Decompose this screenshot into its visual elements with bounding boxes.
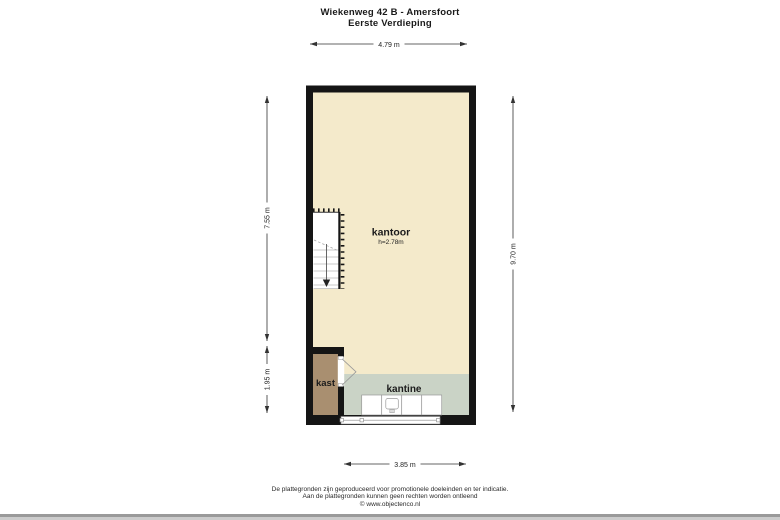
floorplan-drawing: kantoor h=2.78m kast kantine 4.79 m 7.55… bbox=[0, 0, 780, 520]
dimension-right: 9.70 m bbox=[508, 96, 519, 412]
sink-icon bbox=[386, 399, 399, 410]
dim-arrow-icon bbox=[265, 334, 269, 341]
disclaimer-line1: De plattegronden zijn geproduceerd voor … bbox=[0, 486, 780, 493]
kantoor-height-label: h=2.78m bbox=[378, 239, 403, 246]
dim-arrow-icon bbox=[310, 42, 317, 46]
floorplan-page: { "page": { "title_line1": "Wiekenweg 42… bbox=[0, 0, 780, 520]
dim-arrow-icon bbox=[460, 42, 467, 46]
dim-arrow-icon bbox=[344, 462, 351, 466]
kitchen-counter bbox=[362, 395, 442, 415]
disclaimer-line2: Aan de plattegronden kunnen geen rechten… bbox=[0, 493, 780, 500]
dim-arrow-icon bbox=[265, 346, 269, 353]
stairwell bbox=[313, 210, 343, 289]
window-mullion bbox=[340, 418, 344, 422]
dim-right-label: 9.70 m bbox=[511, 243, 518, 265]
window-mullion bbox=[360, 418, 364, 422]
counter-cabinet bbox=[402, 395, 422, 415]
kantine-label: kantine bbox=[386, 384, 421, 395]
door-opening bbox=[338, 357, 344, 386]
window-bottom-border-light bbox=[0, 517, 780, 520]
kast-label: kast bbox=[316, 378, 336, 389]
dim-bottom-label: 3.85 m bbox=[394, 462, 416, 469]
dimension-left-upper: 7.55 m bbox=[262, 96, 273, 341]
dim-arrow-icon bbox=[511, 405, 515, 412]
disclaimer-line3: © www.objectenco.nl bbox=[0, 501, 780, 508]
counter-cabinet bbox=[362, 395, 382, 415]
dim-arrow-icon bbox=[265, 96, 269, 103]
kantoor-label: kantoor bbox=[372, 227, 411, 239]
window-mullion bbox=[437, 418, 441, 422]
dimension-bottom: 3.85 m bbox=[344, 459, 466, 469]
sink-tap-icon bbox=[390, 410, 395, 413]
dim-arrow-icon bbox=[459, 462, 466, 466]
disclaimer: De plattegronden zijn geproduceerd voor … bbox=[0, 486, 780, 508]
dimension-left-lower: 1.95 m bbox=[262, 346, 273, 413]
dim-left-upper-label: 7.55 m bbox=[265, 207, 272, 229]
dim-left-lower-label: 1.95 m bbox=[265, 369, 272, 391]
window bbox=[340, 417, 440, 425]
counter-cabinet bbox=[422, 395, 442, 415]
dimension-top: 4.79 m bbox=[310, 39, 467, 49]
dim-arrow-icon bbox=[265, 406, 269, 413]
dim-arrow-icon bbox=[511, 96, 515, 103]
dim-top-label: 4.79 m bbox=[378, 42, 400, 49]
